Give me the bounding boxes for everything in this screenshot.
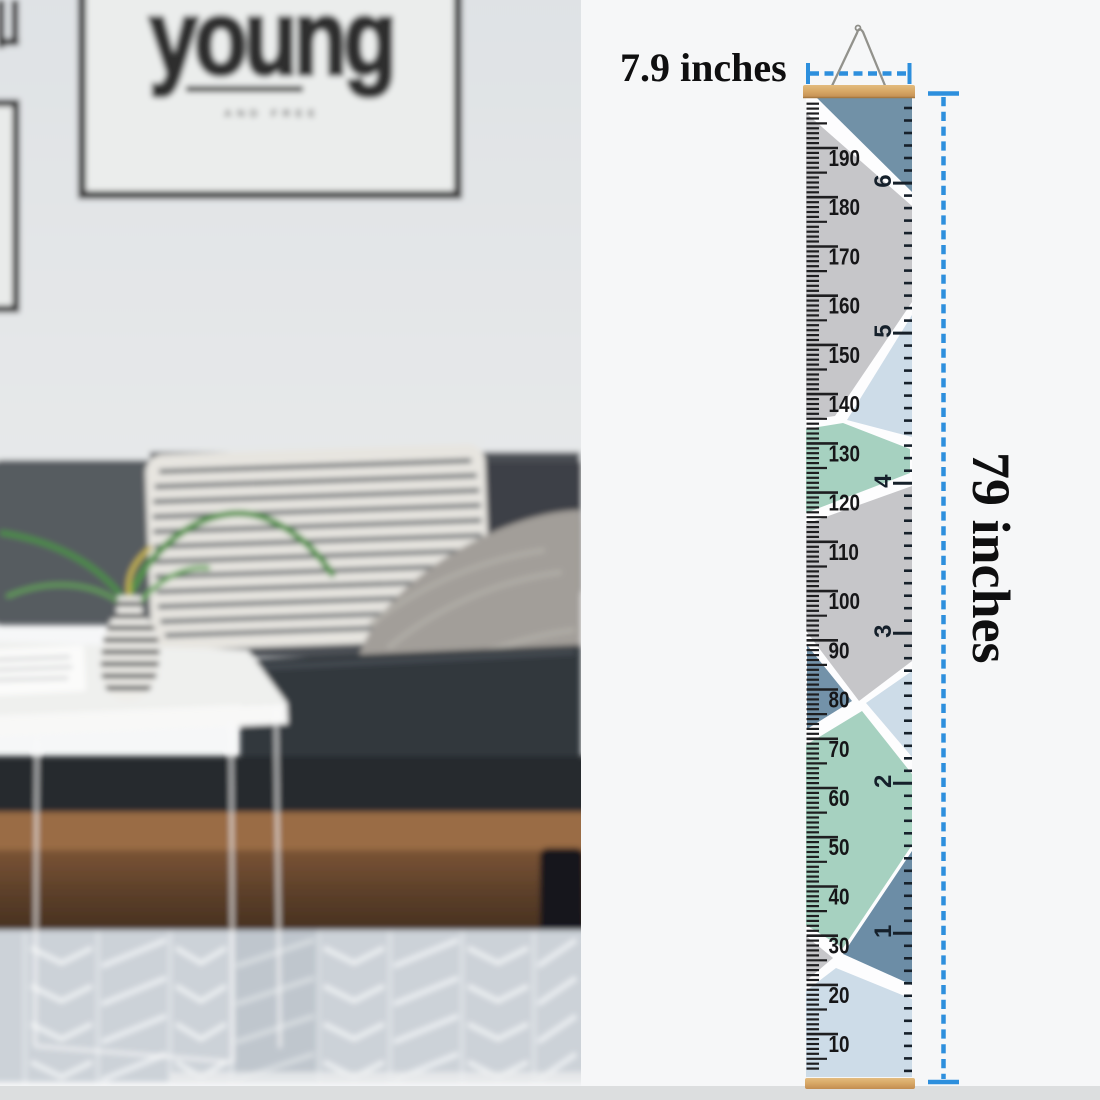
svg-text:180: 180 <box>829 196 860 221</box>
svg-text:120: 120 <box>829 491 860 516</box>
svg-text:7.9 inches: 7.9 inches <box>620 45 787 90</box>
svg-text:90: 90 <box>829 639 850 664</box>
svg-text:1: 1 <box>870 925 897 938</box>
svg-text:150: 150 <box>829 343 860 368</box>
svg-text:6: 6 <box>870 174 897 187</box>
svg-text:40: 40 <box>829 885 850 910</box>
svg-text:AND FREE: AND FREE <box>224 108 320 120</box>
svg-text:20: 20 <box>829 983 850 1008</box>
svg-text:170: 170 <box>829 245 860 270</box>
svg-text:10: 10 <box>829 1032 850 1057</box>
svg-text:70: 70 <box>829 737 850 762</box>
svg-text:2: 2 <box>870 775 897 788</box>
svg-text:3: 3 <box>870 625 897 638</box>
svg-text:young: young <box>149 0 393 97</box>
svg-text:5: 5 <box>870 324 897 337</box>
svg-text:140: 140 <box>829 392 860 417</box>
svg-text:4: 4 <box>870 474 897 488</box>
svg-text:130: 130 <box>829 442 860 467</box>
svg-text:160: 160 <box>829 294 860 319</box>
svg-text:30: 30 <box>829 934 850 959</box>
svg-text:100: 100 <box>829 589 860 614</box>
svg-text:80: 80 <box>829 688 850 713</box>
svg-text:50: 50 <box>829 836 850 861</box>
svg-text:60: 60 <box>829 786 850 811</box>
svg-text:190: 190 <box>829 146 860 171</box>
svg-text:110: 110 <box>829 540 859 565</box>
svg-text:79 inches: 79 inches <box>961 452 1021 664</box>
